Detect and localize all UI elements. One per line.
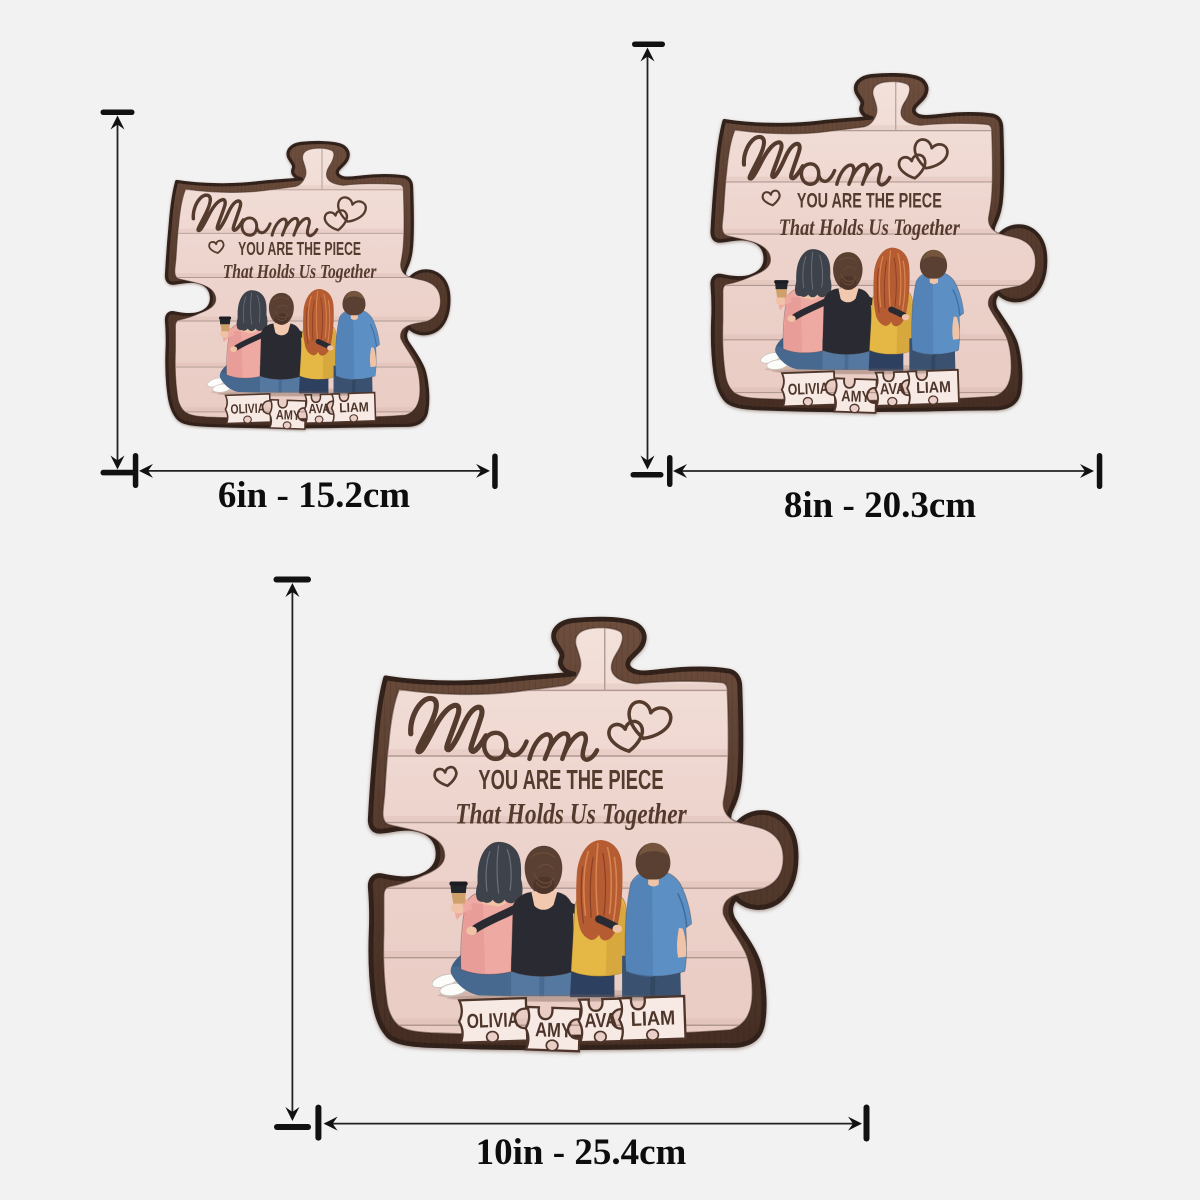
svg-text:8in - 20.3cm: 8in - 20.3cm: [784, 485, 976, 526]
svg-text:6in - 15.2cm: 6in - 15.2cm: [218, 475, 410, 516]
svg-text:10in - 25.4cm: 10in - 25.4cm: [476, 1132, 687, 1173]
